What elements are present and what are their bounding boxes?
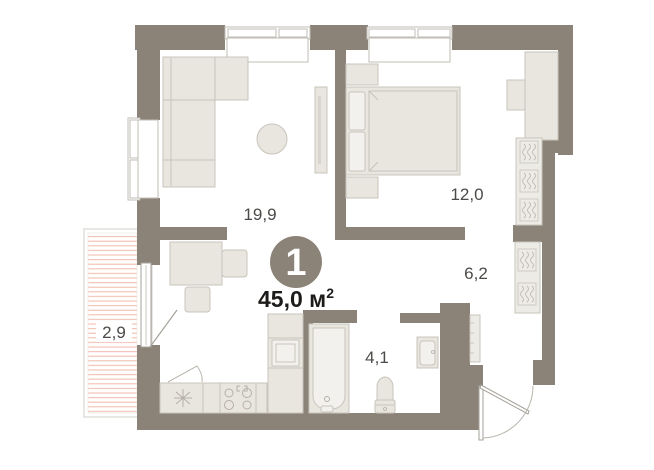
sofa-chaise (215, 57, 248, 100)
nightstand-bottom (346, 177, 378, 198)
room-label-bath: 4,1 (365, 348, 389, 367)
wall-top-middle (310, 25, 368, 50)
balcony-door-leaf (150, 310, 177, 347)
wall-bedroom-south (335, 227, 465, 240)
wall-right-step (542, 140, 573, 153)
unit-area-superscript: 2 (326, 285, 334, 301)
unit-area-value: 45,0 м (258, 286, 326, 312)
hallway-furniture (470, 242, 540, 362)
wall-left-upper (137, 25, 160, 120)
washbasin (417, 337, 438, 368)
counter-corner-detail (168, 366, 202, 382)
wall-bottom (150, 413, 483, 430)
tv-icon (318, 96, 321, 164)
window-living-side (128, 118, 158, 200)
bathtub (309, 324, 349, 413)
wall-stub-dining (160, 227, 227, 240)
kitchen (160, 314, 303, 413)
entrance-door-leaf (480, 385, 529, 414)
dining-table (170, 242, 222, 285)
toilet (375, 377, 395, 413)
bedroom-wardrobe (516, 138, 542, 225)
unit-area: 45,0 м2 (258, 285, 334, 312)
wall-living-bedroom (335, 50, 346, 240)
window-bedroom (367, 27, 452, 62)
wall-bath-north-right (400, 313, 440, 323)
wall-top-right (452, 25, 573, 50)
pillow-bottom (349, 132, 365, 171)
entry-shelf (470, 315, 480, 362)
wall-right-upper (558, 25, 573, 155)
wall-entrance-jamb (533, 360, 555, 385)
wall-stub-wardrobe (513, 225, 542, 242)
room-label-bedroom: 12,0 (450, 185, 483, 204)
bedroom-cabinet (525, 52, 558, 140)
entrance-door (479, 385, 533, 440)
wall-right-lower (542, 153, 555, 385)
coffee-table (257, 124, 287, 154)
bedroom-cabinet-extension (507, 80, 525, 110)
bathtub-faucet-icon (321, 406, 333, 412)
room-label-living: 19,9 (243, 205, 276, 224)
dining-chair-bottom (185, 287, 210, 312)
unit-badge: 1 45,0 м2 (258, 236, 334, 312)
bathroom-fixtures (309, 324, 438, 413)
unit-number: 1 (285, 242, 306, 284)
dining-chair-right (222, 250, 247, 277)
wall-left-middle (137, 198, 160, 265)
nightstand-top (346, 64, 378, 85)
pillow-top (349, 92, 365, 130)
room-label-balcony: 2,9 (102, 323, 126, 342)
hall-wardrobe (515, 242, 540, 313)
entrance-door-leaf-open (479, 386, 483, 440)
floor-plan: 19,9 12,0 6,2 4,1 2,9 1 45,0 м2 (0, 0, 654, 470)
room-label-hall: 6,2 (464, 264, 488, 283)
